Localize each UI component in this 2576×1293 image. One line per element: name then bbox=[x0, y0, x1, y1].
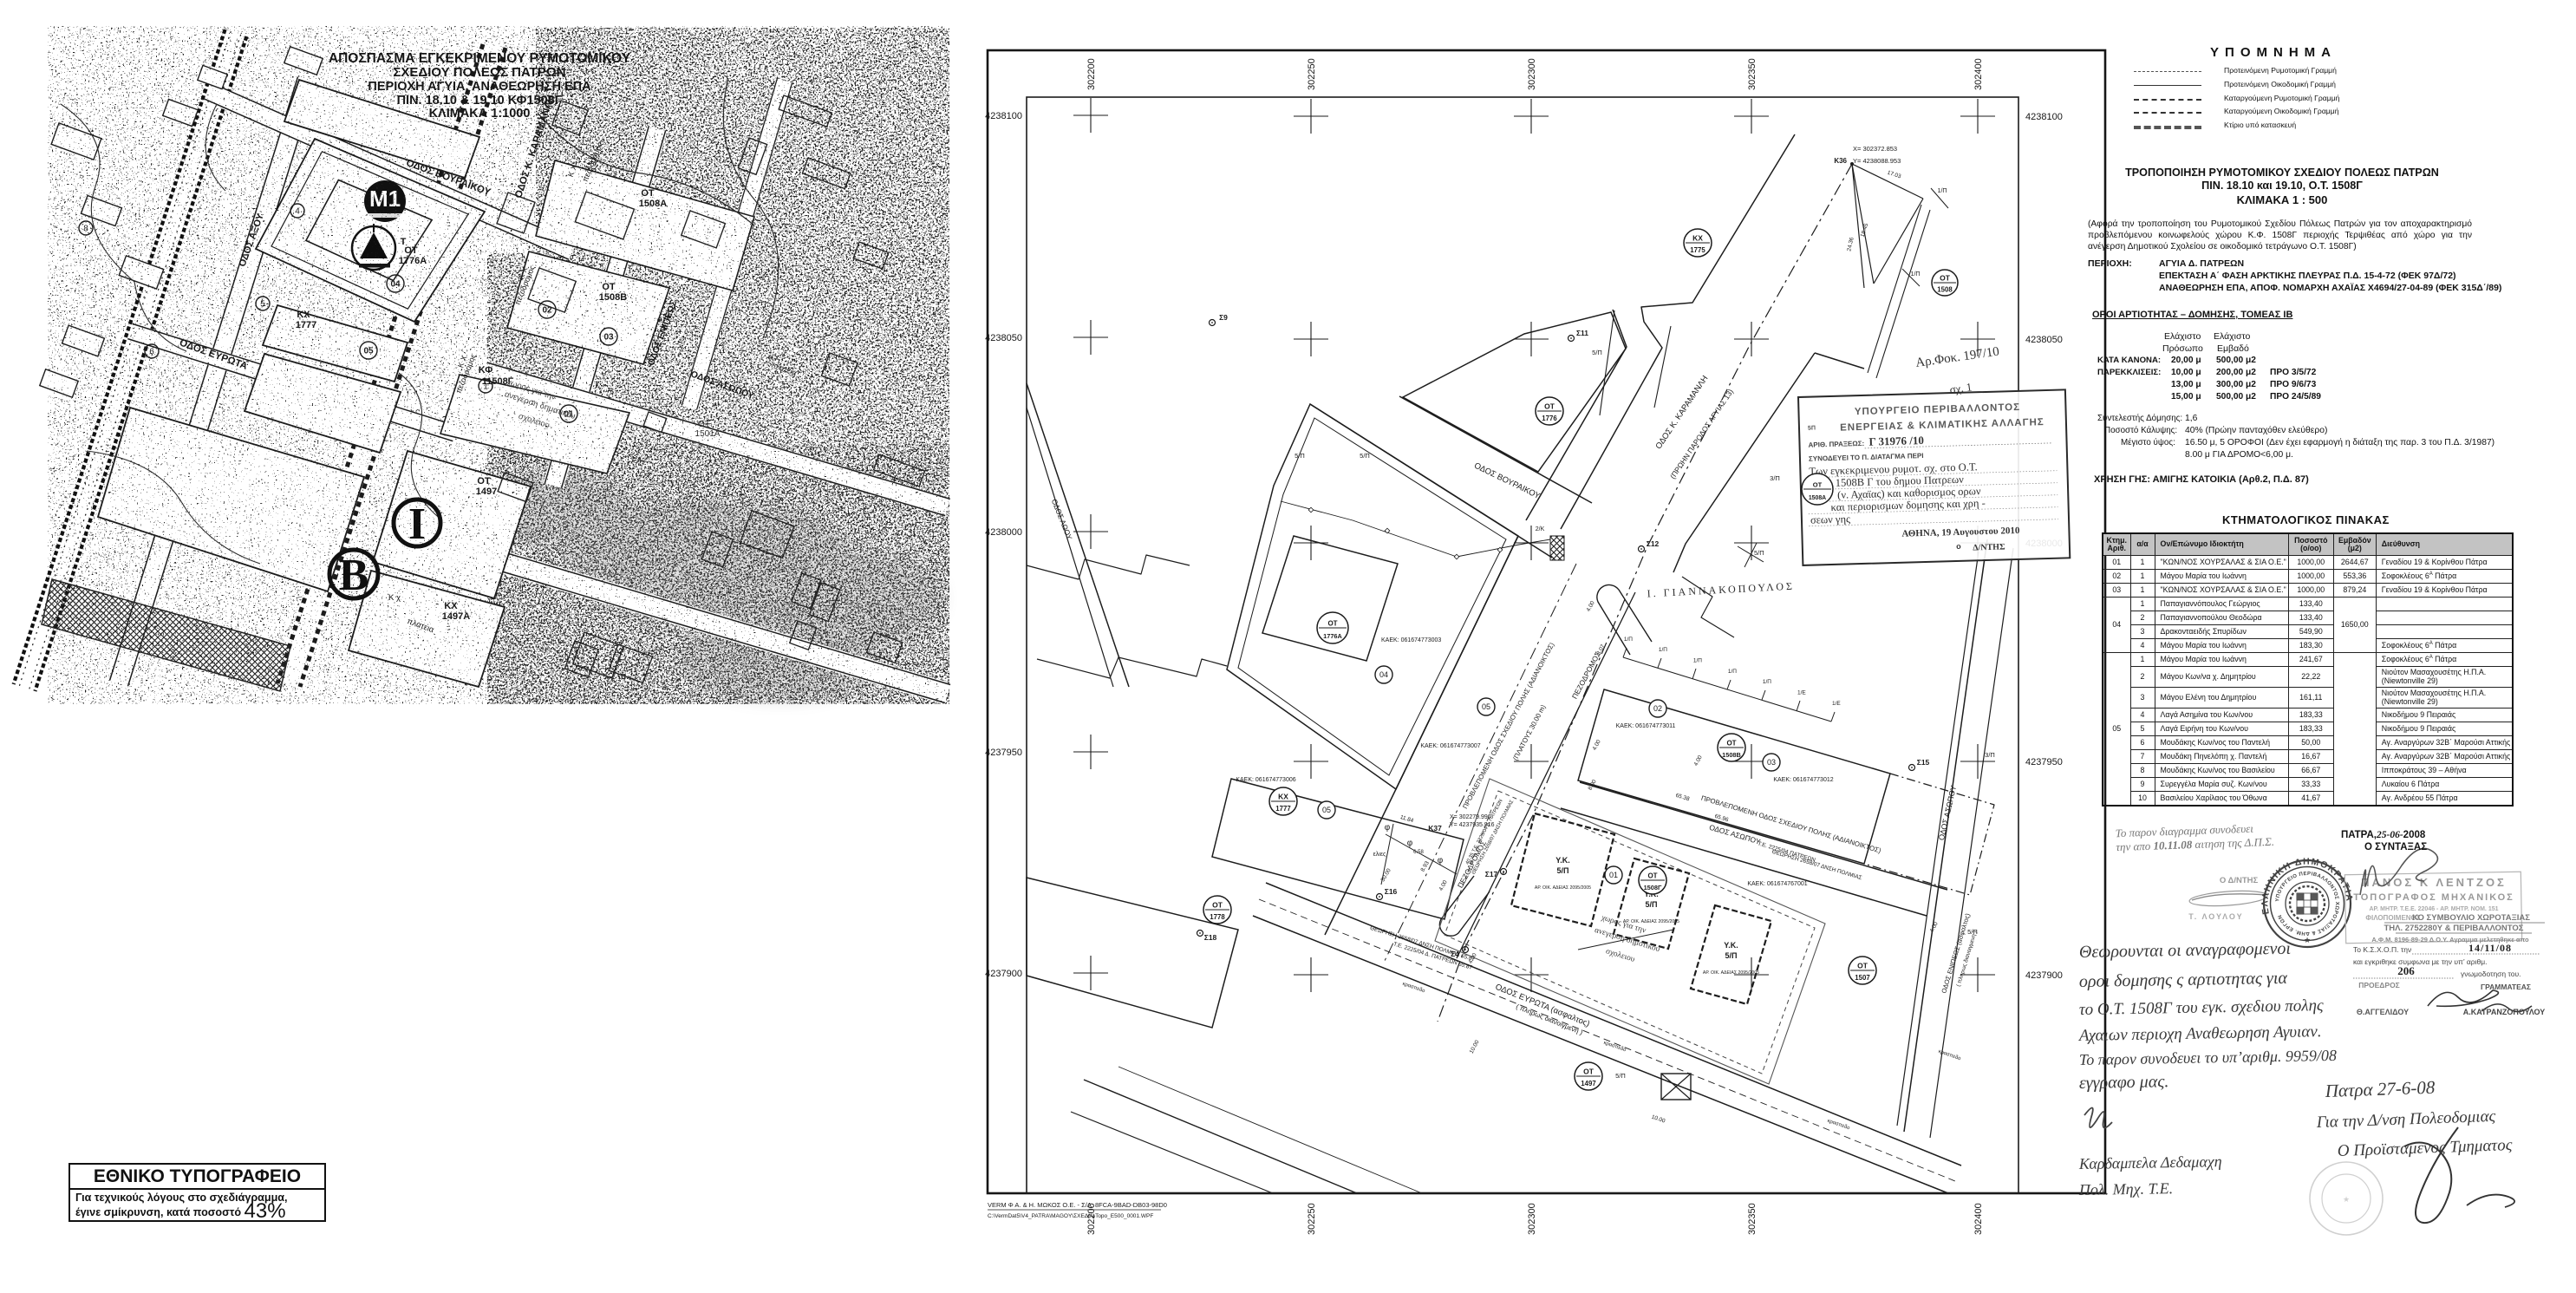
svg-text:ΚΑΕΚ: 061674767001: ΚΑΕΚ: 061674767001 bbox=[1747, 881, 1807, 887]
svg-text:04: 04 bbox=[1379, 670, 1388, 679]
svg-text:5/Π: 5/Π bbox=[1360, 452, 1370, 460]
svg-text:24.36: 24.36 bbox=[1846, 237, 1855, 252]
svg-text:Τ. ΛΟΥΛΟΥ: Τ. ΛΟΥΛΟΥ bbox=[2188, 912, 2243, 921]
svg-text:Υ.Κ.: Υ.Κ. bbox=[1555, 856, 1570, 865]
svg-text:1/Π: 1/Π bbox=[1693, 658, 1702, 664]
svg-text:302300: 302300 bbox=[1527, 58, 1537, 90]
svg-text:Σ15: Σ15 bbox=[1917, 758, 1930, 767]
svg-text:Ι. ΓΙΑΝΝΑΚΟΠΟΥΛΟΣ: Ι. ΓΙΑΝΝΑΚΟΠΟΥΛΟΣ bbox=[1647, 580, 1795, 600]
svg-text:1508: 1508 bbox=[1937, 285, 1953, 293]
svg-text:5/Π: 5/Π bbox=[1295, 452, 1305, 460]
svg-text:01: 01 bbox=[1609, 871, 1618, 879]
svg-text:1777: 1777 bbox=[1275, 805, 1290, 813]
svg-text:ΤΟΠΟΓΡΑΦΟΣ ΜΗΧΑΝΙΚΟΣ: ΤΟΠΟΓΡΑΦΟΣ ΜΗΧΑΝΙΚΟΣ bbox=[2353, 892, 2514, 903]
svg-text:4238100: 4238100 bbox=[985, 111, 1022, 121]
svg-text:4237900: 4237900 bbox=[2025, 970, 2063, 981]
svg-text:Υ= 4237935.916: Υ= 4237935.916 bbox=[1450, 822, 1495, 828]
svg-text:και εγκριθηκε συμφωνα με την υ: και εγκριθηκε συμφωνα με την υπ’ αριθμ. bbox=[2353, 957, 2487, 966]
svg-text:4238100: 4238100 bbox=[2025, 112, 2063, 122]
svg-text:ΟΤ: ΟΤ bbox=[1583, 1068, 1595, 1076]
svg-text:4.00: 4.00 bbox=[1586, 600, 1596, 613]
svg-text:Σ9: Σ9 bbox=[1219, 313, 1228, 322]
svg-text:ΟΔΟΣ ΕΥΡΩΤΑ (ασφαλτος): ΟΔΟΣ ΕΥΡΩΤΑ (ασφαλτος) bbox=[1494, 983, 1591, 1029]
svg-text:03: 03 bbox=[1767, 758, 1776, 767]
svg-text:Θ.ΑΓΓΕΛΙΔΟΥ: Θ.ΑΓΓΕΛΙΔΟΥ bbox=[2357, 1008, 2409, 1016]
svg-text:4237950: 4237950 bbox=[985, 748, 1022, 758]
svg-text:3/Π: 3/Π bbox=[1985, 751, 1995, 759]
svg-text:ΟΤ: ΟΤ bbox=[1647, 872, 1657, 880]
svg-text:5Π: 5Π bbox=[1808, 425, 1816, 431]
svg-text:5/Π: 5/Π bbox=[1725, 951, 1737, 960]
svg-text:4.00: 4.00 bbox=[1438, 879, 1449, 892]
svg-text:Δ/ΝΤΗΣ: Δ/ΝΤΗΣ bbox=[1973, 542, 2005, 552]
svg-text:Καρδαμπελα Δεδαμαχη: Καρδαμπελα Δεδαμαχη bbox=[2078, 1153, 2222, 1172]
svg-text:Σ12: Σ12 bbox=[1647, 539, 1660, 548]
svg-text:Πατρα 27-6-08: Πατρα 27-6-08 bbox=[2324, 1077, 2436, 1101]
svg-text:5/Π: 5/Π bbox=[1754, 549, 1764, 557]
svg-text:ΠΡΟΕΔΡΟΣ: ΠΡΟΕΔΡΟΣ bbox=[2358, 981, 2400, 989]
svg-text:1/Π: 1/Π bbox=[1728, 669, 1737, 675]
svg-text:1/Π: 1/Π bbox=[1659, 647, 1667, 653]
svg-text:ΚΑΕΚ: 061674773006: ΚΑΕΚ: 061674773006 bbox=[1236, 777, 1295, 783]
svg-text:ΑΡ. ΟΙΚ. ΑΔΕΙΑΣ 2095/2005: ΑΡ. ΟΙΚ. ΑΔΕΙΑΣ 2095/2005 bbox=[1535, 885, 1591, 891]
svg-text:Κ37: Κ37 bbox=[1428, 824, 1442, 833]
svg-text:γνωμοδοτηση του.: γνωμοδοτηση του. bbox=[2461, 970, 2521, 978]
svg-text:ΚΟ ΣΥΜΒΟΥΛΙΟ ΧΩΡΟΤΑΞΙΑΣ: ΚΟ ΣΥΜΒΟΥΛΙΟ ΧΩΡΟΤΑΞΙΑΣ bbox=[2412, 913, 2530, 923]
svg-text:ΟΔΟΣ ΑΩΟΥ: ΟΔΟΣ ΑΩΟΥ bbox=[1050, 498, 1074, 541]
svg-text:1/Ε: 1/Ε bbox=[1832, 701, 1841, 707]
svg-text:02: 02 bbox=[1653, 704, 1662, 713]
svg-text:4238050: 4238050 bbox=[2025, 335, 2063, 345]
svg-text:Το Κ.Σ.Χ.Ο.Π. την: Το Κ.Σ.Χ.Ο.Π. την bbox=[2353, 945, 2411, 954]
svg-text:ΠΡΟΒΛΕΠΟΜΕΝΗ ΟΔΟΣ ΣΧΕΔΙΟΥ ΠΟΛΗ: ΠΡΟΒΛΕΠΟΜΕΝΗ ΟΔΟΣ ΣΧΕΔΙΟΥ ΠΟΛΗΣ (ΑΔΙΑΝΟΙ… bbox=[1461, 641, 1555, 810]
svg-text:ΚΧ: ΚΧ bbox=[1278, 793, 1288, 801]
svg-text:ΚΑΕΚ: 061674773003: ΚΑΕΚ: 061674773003 bbox=[1381, 637, 1441, 643]
svg-text:4.00: 4.00 bbox=[1929, 921, 1940, 934]
svg-text:Για την Δ/νση Πολεοδομιας: Για την Δ/νση Πολεοδομιας bbox=[2315, 1107, 2495, 1132]
svg-text:Ο Προϊσταμενος Τμηματος: Ο Προϊσταμενος Τμηματος bbox=[2337, 1136, 2513, 1160]
svg-text:ΚΑΕΚ: 061674773007: ΚΑΕΚ: 061674773007 bbox=[1420, 743, 1480, 749]
svg-text:4238000: 4238000 bbox=[985, 527, 1022, 538]
svg-text:1497: 1497 bbox=[1581, 1080, 1595, 1087]
svg-text:Χ= 302372.853: Χ= 302372.853 bbox=[1853, 145, 1897, 153]
svg-text:ανεγερση δημοτικου: ανεγερση δημοτικου bbox=[1594, 926, 1661, 955]
svg-text:302350: 302350 bbox=[1747, 58, 1758, 90]
svg-text:ΓΡΑΜΜΑΤΕΑΣ: ΓΡΑΜΜΑΤΕΑΣ bbox=[2481, 983, 2531, 991]
svg-text:Υ.Κ.: Υ.Κ. bbox=[1724, 941, 1738, 950]
svg-text:ΟΤ: ΟΤ bbox=[1857, 962, 1868, 970]
svg-text:ΘΕΩΡΗΣΗ 2658/07 ΔΝΣΗ ΠΟΛΜΙΑΣ: ΘΕΩΡΗΣΗ 2658/07 ΔΝΣΗ ΠΟΛΜΙΑΣ bbox=[1771, 849, 1862, 881]
svg-text:1508Α: 1508Α bbox=[1809, 495, 1826, 501]
svg-text:65.38: 65.38 bbox=[1675, 793, 1691, 803]
svg-text:3/Π: 3/Π bbox=[1770, 474, 1780, 482]
svg-text:302350: 302350 bbox=[1747, 1203, 1758, 1235]
svg-text:Σ17: Σ17 bbox=[1485, 870, 1498, 878]
svg-text:10.00: 10.00 bbox=[1651, 1114, 1666, 1125]
svg-text:05: 05 bbox=[1482, 702, 1490, 711]
svg-text:1775: 1775 bbox=[1690, 246, 1705, 254]
svg-text:ΟΤ: ΟΤ bbox=[1940, 274, 1951, 283]
svg-text:κρασπεδο: κρασπεδο bbox=[1603, 1041, 1627, 1054]
svg-text:5/Π: 5/Π bbox=[1615, 1072, 1626, 1080]
svg-text:18.45: 18.45 bbox=[1860, 222, 1870, 238]
svg-text:206: 206 bbox=[2397, 964, 2415, 977]
svg-text:8.93: 8.93 bbox=[1420, 860, 1431, 873]
svg-text:4.00: 4.00 bbox=[1592, 739, 1602, 752]
svg-text:5/Π: 5/Π bbox=[1645, 900, 1657, 909]
svg-text:302300: 302300 bbox=[1527, 1203, 1537, 1235]
svg-text:Χ= 302279.996: Χ= 302279.996 bbox=[1450, 814, 1491, 820]
svg-text:302400: 302400 bbox=[1973, 58, 1984, 90]
svg-text:Αχαιων περιοχη Αναθεωρηση Α: Αχαιων περιοχη Αναθεωρηση Αγυιαν. bbox=[2077, 1022, 2322, 1045]
svg-text:ελιες: ελιες bbox=[1373, 852, 1386, 858]
svg-text:1778: 1778 bbox=[1210, 913, 1225, 921]
svg-text:(ΠΡΩΗΝ ΠΑΡΟΔΟΣ ΑΓΥΙΑΣ 13): (ΠΡΩΗΝ ΠΑΡΟΔΟΣ ΑΓΥΙΑΣ 13) bbox=[1668, 388, 1735, 480]
svg-text:ΟΤ: ΟΤ bbox=[1726, 740, 1736, 748]
svg-text:1/Π: 1/Π bbox=[1763, 679, 1771, 685]
svg-text:εγγραφο μας.: εγγραφο μας. bbox=[2079, 1072, 2169, 1093]
svg-text:ΟΤ: ΟΤ bbox=[1212, 901, 1223, 910]
svg-text:Σ11: Σ11 bbox=[1576, 329, 1588, 337]
svg-text:1/Ε: 1/Ε bbox=[1797, 690, 1806, 696]
svg-text:4237900: 4237900 bbox=[985, 969, 1022, 979]
svg-text:★: ★ bbox=[2304, 936, 2311, 944]
svg-text:Γ 31976 /10: Γ 31976 /10 bbox=[1868, 434, 1924, 448]
svg-text:ΟΔΟΣ ΑΣΩΠΟΥ: ΟΔΟΣ ΑΣΩΠΟΥ bbox=[1937, 785, 1958, 841]
svg-text:4238050: 4238050 bbox=[985, 333, 1022, 343]
svg-text:ΑΡΙΘ. ΠΡΑΞΕΩΣ:: ΑΡΙΘ. ΠΡΑΞΕΩΣ: bbox=[1808, 440, 1864, 449]
svg-text:1508Γ: 1508Γ bbox=[1644, 884, 1662, 891]
svg-text:17.03: 17.03 bbox=[1887, 170, 1902, 180]
svg-text:ΟΤ: ΟΤ bbox=[1813, 481, 1823, 489]
svg-text:2/Κ: 2/Κ bbox=[1536, 526, 1545, 532]
svg-text:Ο Δ/ΝΤΗΣ: Ο Δ/ΝΤΗΣ bbox=[2220, 876, 2259, 885]
svg-text:★: ★ bbox=[2343, 1195, 2350, 1204]
svg-text:ΟΤ: ΟΤ bbox=[1327, 620, 1337, 628]
svg-text:ΚΑΕΚ: 061674773011: ΚΑΕΚ: 061674773011 bbox=[1616, 723, 1676, 729]
svg-text:κρασπεδο: κρασπεδο bbox=[1827, 1119, 1851, 1132]
svg-text:1776: 1776 bbox=[1542, 415, 1557, 422]
svg-text:ΑΡ. ΜΗΤΡ. Τ.Ε.Ε. 22046 - ΑΡ. Μ: ΑΡ. ΜΗΤΡ. Τ.Ε.Ε. 22046 - ΑΡ. ΜΗΤΡ. ΝΟΜ. … bbox=[2369, 906, 2498, 912]
svg-text:05: 05 bbox=[1322, 806, 1331, 814]
svg-text:302250: 302250 bbox=[1307, 1203, 1317, 1235]
svg-text:8.00: 8.00 bbox=[1588, 779, 1598, 792]
svg-text:5/Π: 5/Π bbox=[1967, 928, 1978, 936]
svg-text:302200: 302200 bbox=[1086, 58, 1097, 90]
svg-text:14/11/08: 14/11/08 bbox=[2468, 942, 2512, 954]
svg-text:το Ο.Τ. 1508Γ του εγκ. σχε: το Ο.Τ. 1508Γ του εγκ. σχεδιου πολης bbox=[2079, 996, 2324, 1019]
svg-text:1776Α: 1776Α bbox=[1323, 632, 1342, 640]
svg-text:5/Π: 5/Π bbox=[1556, 866, 1568, 875]
svg-text:302400: 302400 bbox=[1973, 1203, 1984, 1235]
svg-text:VERM Φ Α. & Η. ΜΩΚΟΣ Ο.Ε. -: VERM Φ Α. & Η. ΜΩΚΟΣ Ο.Ε. - Σ/Α: 8FCA-9B… bbox=[988, 1201, 1167, 1209]
svg-text:φ: φ bbox=[1385, 823, 1391, 833]
svg-text:4237950: 4237950 bbox=[2025, 757, 2063, 767]
svg-text:C:\VermDat5\V4_PATRA\MAGOY\ΣΧΕ: C:\VermDat5\V4_PATRA\MAGOY\ΣΧΕΔΙΑ\Topo_E… bbox=[988, 1213, 1153, 1219]
svg-text:ΟΔΟΣ ΒΟΥΡΑΙΚΟΥ: ΟΔΟΣ ΒΟΥΡΑΙΚΟΥ bbox=[1472, 461, 1542, 502]
svg-text:Α.ΚΑΤΡΑΝΖΟΠΟΥΛΟΥ: Α.ΚΑΤΡΑΝΖΟΠΟΥΛΟΥ bbox=[2463, 1008, 2546, 1016]
svg-text:σεων γης: σεων γης bbox=[1810, 513, 1850, 526]
svg-text:302250: 302250 bbox=[1307, 58, 1317, 90]
svg-text:10.00: 10.00 bbox=[1469, 1039, 1481, 1055]
svg-text:Το παρον συνοδευει το υπ’αρι: Το παρον συνοδευει το υπ’αριθμ. 9959/08 bbox=[2079, 1047, 2337, 1068]
svg-text:ο: ο bbox=[1956, 542, 1961, 551]
svg-text:ΠΑΝΟΣ Κ ΛΕΝΤΖΟΣ: ΠΑΝΟΣ Κ ΛΕΝΤΖΟΣ bbox=[2361, 876, 2507, 889]
svg-text:1/Π: 1/Π bbox=[1938, 188, 1947, 194]
svg-text:1508Β: 1508Β bbox=[1722, 751, 1741, 759]
svg-text:1/Π: 1/Π bbox=[1624, 637, 1633, 643]
svg-text:Σ18: Σ18 bbox=[1204, 933, 1217, 942]
svg-text:ΚΑΕΚ: 061674773012: ΚΑΕΚ: 061674773012 bbox=[1773, 777, 1833, 783]
svg-text:Υ= 4238088.953: Υ= 4238088.953 bbox=[1853, 157, 1901, 165]
svg-text:Αρ.Φοκ. 197/10: Αρ.Φοκ. 197/10 bbox=[1914, 345, 2000, 370]
svg-text:Σ16: Σ16 bbox=[1385, 887, 1398, 896]
svg-text:Κ36: Κ36 bbox=[1834, 157, 1847, 165]
svg-text:Θεωρουνται οι αναγραφομενοι: Θεωρουνται οι αναγραφομενοι bbox=[2079, 939, 2291, 962]
svg-text:ΑΡ. ΟΙΚ. ΑΔΕΙΑΣ 2095/2005: ΑΡ. ΟΙΚ. ΑΔΕΙΑΣ 2095/2005 bbox=[1703, 970, 1759, 976]
svg-text:1507: 1507 bbox=[1855, 974, 1869, 982]
svg-text:1/Π: 1/Π bbox=[1911, 271, 1921, 278]
svg-text:οροι δομησης ς αρτιοτητας: οροι δομησης ς αρτιοτητας για bbox=[2079, 969, 2288, 991]
svg-text:Πολ. Μηχ. Τ.Ε.: Πολ. Μηχ. Τ.Ε. bbox=[2078, 1179, 2174, 1198]
svg-text:ΚΧ: ΚΧ bbox=[1692, 234, 1703, 243]
svg-text:4.00: 4.00 bbox=[1693, 754, 1704, 767]
svg-text:ΟΤ: ΟΤ bbox=[1544, 402, 1555, 411]
svg-text:ΤΗΛ. 2752280Υ & ΠΕΡΙΒΑΛΛΟΝΤΟΣ: ΤΗΛ. 2752280Υ & ΠΕΡΙΒΑΛΛΟΝΤΟΣ bbox=[2384, 924, 2523, 933]
svg-text:σχολειου: σχολειου bbox=[1605, 947, 1636, 964]
svg-text:5/Π: 5/Π bbox=[1592, 349, 1602, 356]
